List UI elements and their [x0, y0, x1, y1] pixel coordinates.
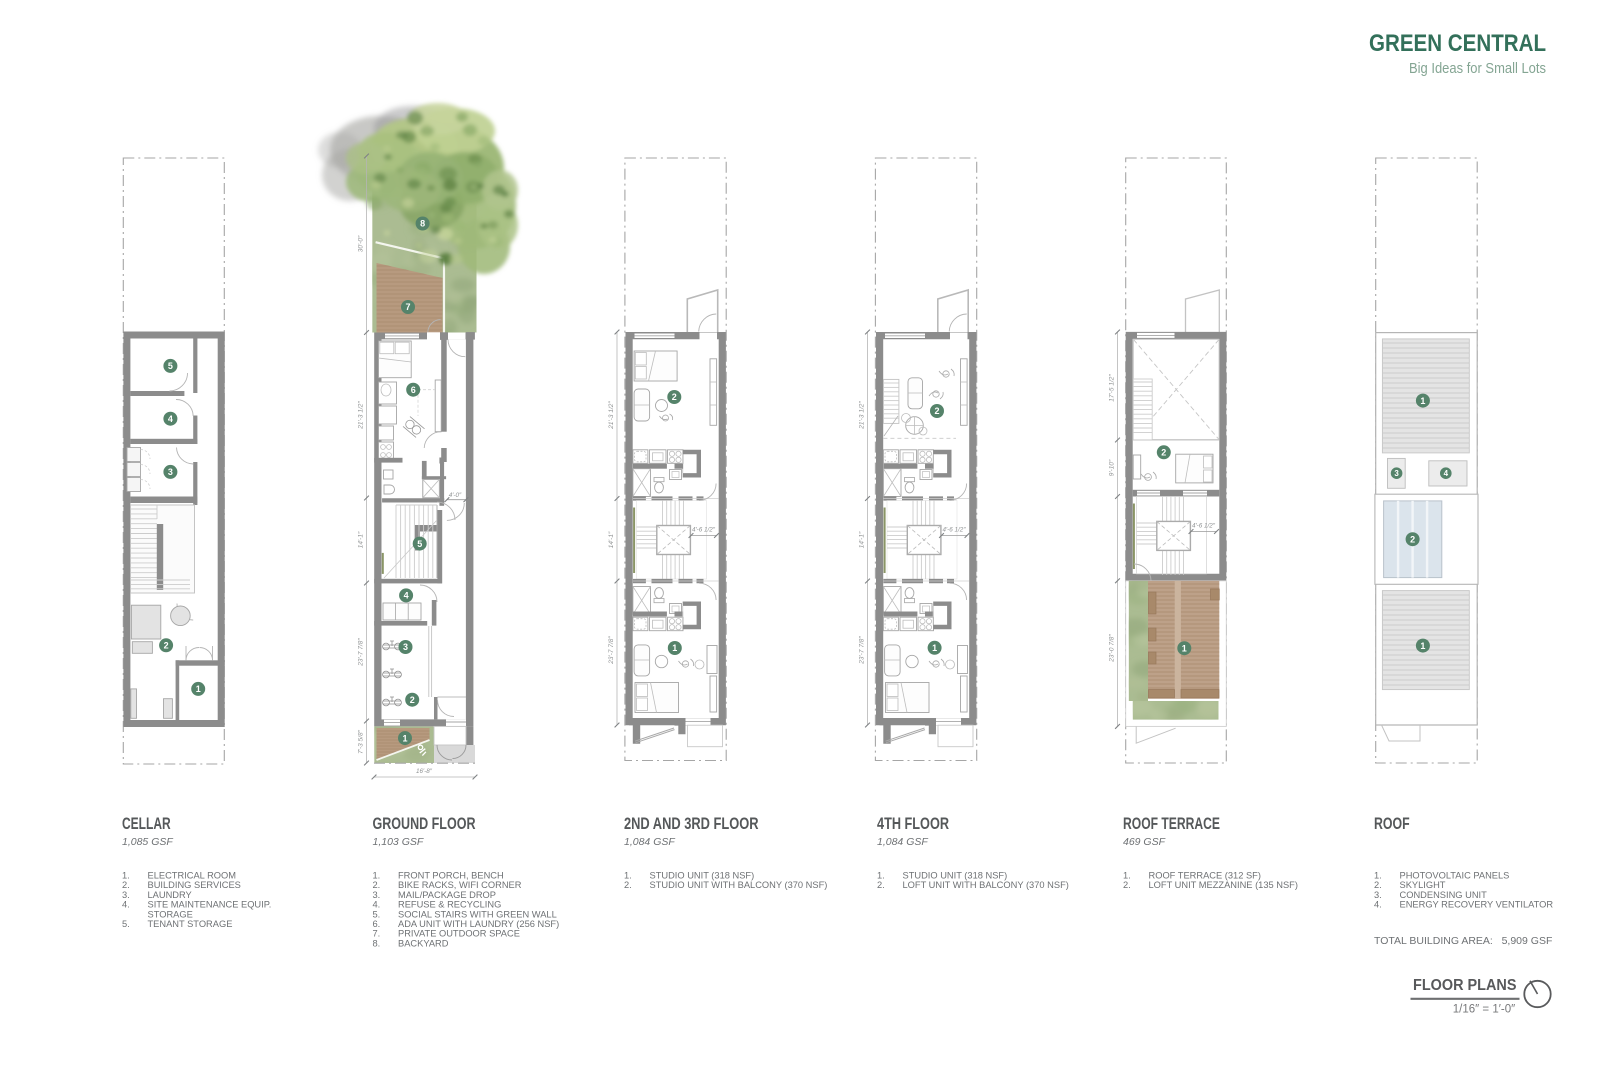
svg-text:STUDIO UNIT WITH BALCONY (370: STUDIO UNIT WITH BALCONY (370 NSF)	[650, 880, 828, 890]
svg-text:STUDIO UNIT (318 NSF): STUDIO UNIT (318 NSF)	[650, 871, 755, 881]
svg-text:1.: 1.	[624, 871, 632, 881]
svg-text:23′-7 7/8″: 23′-7 7/8″	[859, 636, 866, 665]
svg-text:PRIVATE OUTDOOR SPACE: PRIVATE OUTDOOR SPACE	[398, 929, 520, 939]
svg-text:17′-5 1/2″: 17′-5 1/2″	[1109, 374, 1116, 402]
svg-text:1: 1	[932, 643, 937, 653]
svg-text:2: 2	[672, 392, 677, 402]
svg-text:2.: 2.	[373, 880, 381, 890]
svg-text:1.: 1.	[1123, 871, 1131, 881]
svg-text:4′-6 1/2″: 4′-6 1/2″	[1192, 523, 1216, 530]
svg-text:5: 5	[168, 361, 173, 371]
svg-text:2.: 2.	[1123, 880, 1131, 890]
svg-text:2.: 2.	[122, 880, 130, 890]
svg-text:23′-7 7/8″: 23′-7 7/8″	[608, 636, 615, 665]
svg-text:3.: 3.	[373, 890, 381, 900]
svg-text:14′-1″: 14′-1″	[608, 531, 615, 548]
svg-text:5.: 5.	[373, 909, 381, 919]
svg-text:3: 3	[403, 642, 408, 652]
svg-text:23′-7 7/8″: 23′-7 7/8″	[358, 638, 365, 667]
svg-text:CONDENSING UNIT: CONDENSING UNIT	[1400, 890, 1488, 900]
svg-text:21′-3 1/2″: 21′-3 1/2″	[358, 401, 365, 430]
svg-text:1,084 GSF: 1,084 GSF	[624, 836, 675, 848]
svg-text:LAUNDRY: LAUNDRY	[148, 890, 192, 900]
svg-text:4.: 4.	[122, 900, 130, 910]
svg-text:ENERGY RECOVERY VENTILATOR: ENERGY RECOVERY VENTILATOR	[1400, 900, 1554, 910]
svg-text:LOFT UNIT WITH BALCONY (370 NS: LOFT UNIT WITH BALCONY (370 NSF)	[903, 880, 1069, 890]
svg-text:SKYLIGHT: SKYLIGHT	[1400, 880, 1446, 890]
svg-text:TOTAL BUILDING AREA: 5,909 G: TOTAL BUILDING AREA: 5,909 GSF	[1374, 935, 1552, 947]
svg-text:7.: 7.	[373, 929, 381, 939]
svg-text:16′-8″: 16′-8″	[416, 768, 433, 775]
svg-text:1.: 1.	[877, 871, 885, 881]
svg-text:5.: 5.	[122, 919, 130, 929]
svg-text:TENANT STORAGE: TENANT STORAGE	[148, 919, 233, 929]
svg-text:MAIL/PACKAGE DROP: MAIL/PACKAGE DROP	[398, 890, 496, 900]
svg-text:469 GSF: 469 GSF	[1123, 836, 1166, 848]
svg-text:6.: 6.	[373, 919, 381, 929]
svg-text:1,103 GSF: 1,103 GSF	[373, 836, 424, 848]
svg-text:ROOF TERRACE: ROOF TERRACE	[1123, 815, 1220, 833]
svg-text:23′-0 7/8″: 23′-0 7/8″	[1109, 634, 1116, 663]
svg-text:GROUND FLOOR: GROUND FLOOR	[373, 815, 476, 833]
svg-text:3: 3	[1394, 469, 1399, 478]
svg-text:SOCIAL STAIRS WITH GREEN WALL: SOCIAL STAIRS WITH GREEN WALL	[398, 909, 557, 919]
svg-text:2.: 2.	[624, 880, 632, 890]
svg-text:SITE MAINTENANCE EQUIP.: SITE MAINTENANCE EQUIP.	[148, 900, 272, 910]
svg-text:STORAGE: STORAGE	[148, 909, 193, 919]
svg-text:1.: 1.	[1374, 871, 1382, 881]
svg-text:BIKE RACKS, WIFI CORNER: BIKE RACKS, WIFI CORNER	[398, 880, 522, 890]
svg-text:STUDIO UNIT (318 NSF): STUDIO UNIT (318 NSF)	[903, 871, 1008, 881]
svg-text:REFUSE & RECYCLING: REFUSE & RECYCLING	[398, 900, 501, 910]
svg-text:14′-1″: 14′-1″	[859, 531, 866, 548]
svg-text:1: 1	[1420, 396, 1425, 406]
svg-text:FLOOR PLANS: FLOOR PLANS	[1413, 977, 1517, 994]
svg-text:FRONT PORCH, BENCH: FRONT PORCH, BENCH	[398, 871, 504, 881]
svg-text:ADA UNIT WITH LAUNDRY (256 NSF: ADA UNIT WITH LAUNDRY (256 NSF)	[398, 919, 559, 929]
svg-text:3: 3	[168, 467, 173, 477]
svg-text:2: 2	[934, 406, 939, 416]
svg-text:21′-3 1/2″: 21′-3 1/2″	[608, 401, 615, 430]
svg-text:6: 6	[411, 385, 416, 395]
svg-text:4TH FLOOR: 4TH FLOOR	[877, 815, 949, 833]
svg-text:21′-3 1/2″: 21′-3 1/2″	[859, 401, 866, 430]
svg-text:4′-0″: 4′-0″	[449, 492, 462, 499]
svg-text:ELECTRICAL ROOM: ELECTRICAL ROOM	[148, 871, 237, 881]
svg-text:4.: 4.	[1374, 900, 1382, 910]
svg-text:1.: 1.	[373, 871, 381, 881]
svg-text:4′-6 1/2″: 4′-6 1/2″	[692, 527, 716, 534]
svg-text:1.: 1.	[122, 871, 130, 881]
svg-text:1,085 GSF: 1,085 GSF	[122, 836, 173, 848]
svg-text:4: 4	[1444, 469, 1449, 478]
svg-text:7: 7	[405, 302, 410, 312]
svg-text:2.: 2.	[877, 880, 885, 890]
svg-text:PHOTOVOLTAIC PANELS: PHOTOVOLTAIC PANELS	[1400, 871, 1510, 881]
svg-text:GREEN CENTRAL: GREEN CENTRAL	[1369, 30, 1546, 57]
svg-text:2ND AND 3RD FLOOR: 2ND AND 3RD FLOOR	[624, 815, 759, 833]
svg-text:BUILDING SERVICES: BUILDING SERVICES	[148, 880, 241, 890]
svg-text:1: 1	[672, 643, 677, 653]
svg-text:3.: 3.	[122, 890, 130, 900]
svg-text:2.: 2.	[1374, 880, 1382, 890]
svg-text:8: 8	[420, 219, 425, 229]
svg-text:ROOF: ROOF	[1374, 815, 1410, 833]
svg-text:2: 2	[1410, 534, 1415, 544]
svg-text:4: 4	[168, 414, 173, 424]
svg-text:2: 2	[410, 695, 415, 705]
svg-text:30′-0″: 30′-0″	[358, 235, 365, 252]
svg-text:LOFT UNIT MEZZANINE (135 NSF): LOFT UNIT MEZZANINE (135 NSF)	[1149, 880, 1298, 890]
svg-text:3.: 3.	[1374, 890, 1382, 900]
svg-text:1: 1	[402, 733, 407, 743]
svg-text:ROOF TERRACE (312 SF): ROOF TERRACE (312 SF)	[1149, 871, 1261, 881]
svg-text:7′-3 5/8″: 7′-3 5/8″	[358, 729, 365, 753]
svg-text:9′-10″: 9′-10″	[1109, 459, 1116, 476]
svg-text:1/16″ = 1′-0″: 1/16″ = 1′-0″	[1453, 1004, 1515, 1016]
svg-text:2: 2	[1161, 447, 1166, 457]
svg-text:BACKYARD: BACKYARD	[398, 938, 449, 948]
svg-text:Big Ideas for Small Lots: Big Ideas for Small Lots	[1409, 61, 1546, 77]
svg-text:1,084 GSF: 1,084 GSF	[877, 836, 928, 848]
svg-text:CELLAR: CELLAR	[122, 815, 171, 833]
svg-text:4.: 4.	[373, 900, 381, 910]
svg-text:14′-1″: 14′-1″	[358, 531, 365, 548]
svg-text:1: 1	[1182, 643, 1187, 653]
svg-text:5: 5	[417, 539, 422, 549]
svg-text:1: 1	[1420, 641, 1425, 651]
svg-text:8.: 8.	[373, 938, 381, 948]
svg-text:1: 1	[196, 684, 201, 694]
svg-text:2: 2	[164, 640, 169, 650]
svg-text:4: 4	[404, 591, 409, 601]
svg-text:4′-6 1/2″: 4′-6 1/2″	[942, 527, 966, 534]
